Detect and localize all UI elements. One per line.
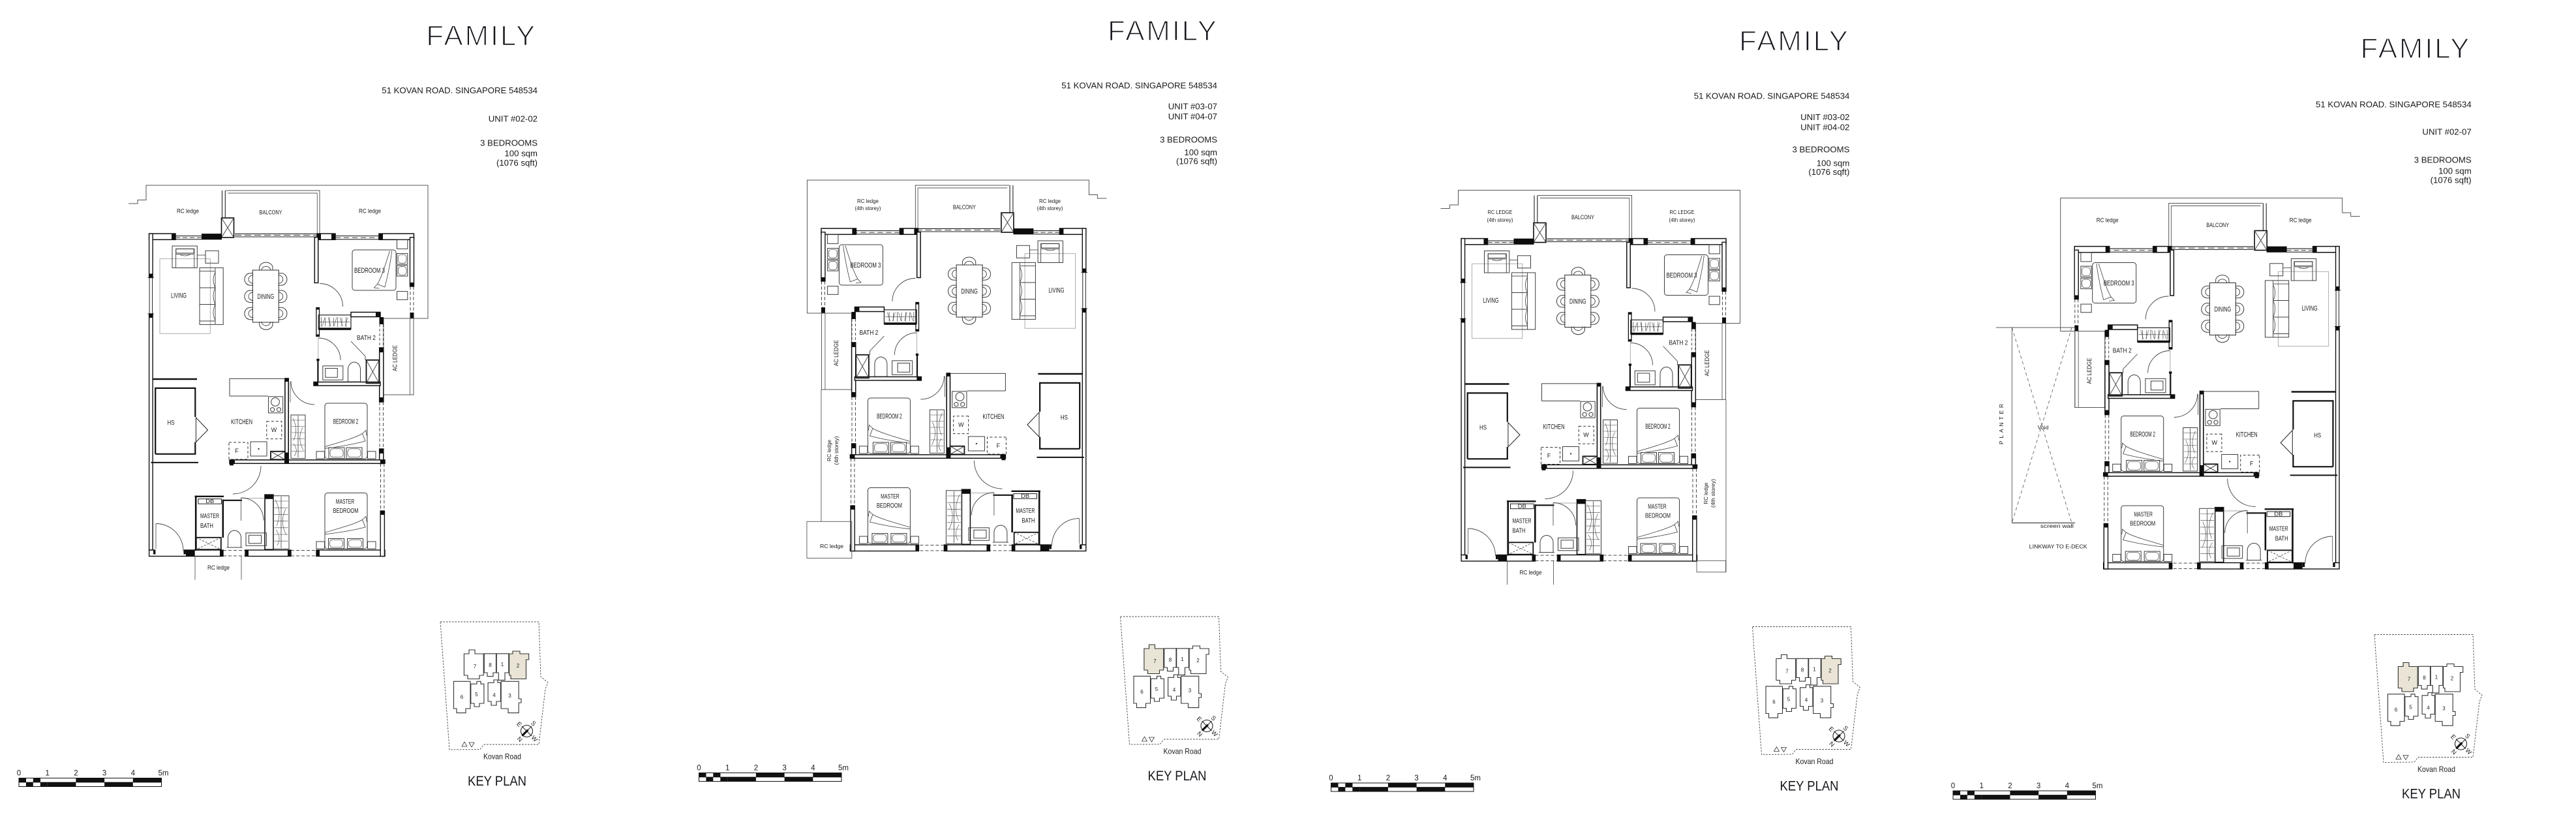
svg-text:1: 1 <box>501 662 504 667</box>
svg-text:PLANTER: PLANTER <box>1998 401 2005 444</box>
svg-text:RC ledge: RC ledge <box>2290 217 2312 224</box>
svg-text:(1076 sqft): (1076 sqft) <box>1808 167 1849 177</box>
svg-text:MASTER: MASTER <box>336 498 355 506</box>
svg-text:Kovan Road: Kovan Road <box>1796 757 1834 766</box>
svg-text:5: 5 <box>1155 686 1159 692</box>
svg-text:Kovan Road: Kovan Road <box>2417 765 2455 774</box>
svg-text:BEDROOM: BEDROOM <box>877 502 902 510</box>
svg-text:3 BEDROOMS: 3 BEDROOMS <box>480 138 538 147</box>
svg-text:2: 2 <box>754 765 758 773</box>
svg-text:4: 4 <box>811 765 815 773</box>
svg-text:BATH: BATH <box>200 523 213 530</box>
svg-text:5m: 5m <box>1470 774 1481 782</box>
svg-text:Kovan Road: Kovan Road <box>483 752 521 761</box>
svg-text:F: F <box>1547 453 1551 459</box>
svg-text:6: 6 <box>1772 699 1776 705</box>
svg-text:3 BEDROOMS: 3 BEDROOMS <box>2414 155 2472 164</box>
svg-text:8: 8 <box>1801 667 1804 673</box>
svg-text:RC ledge: RC ledge <box>1520 570 1542 576</box>
svg-text:KITCHEN: KITCHEN <box>982 413 1004 421</box>
svg-text:HS: HS <box>168 420 175 427</box>
svg-text:(4th storey): (4th storey) <box>1037 206 1063 211</box>
svg-text:UNIT #04-07: UNIT #04-07 <box>1168 112 1217 121</box>
svg-text:AC LEDGE: AC LEDGE <box>2086 358 2093 384</box>
svg-text:5: 5 <box>475 692 478 698</box>
svg-text:(4th storey): (4th storey) <box>1487 217 1513 223</box>
svg-text:7: 7 <box>474 664 477 669</box>
svg-text:DB: DB <box>2274 512 2283 517</box>
svg-text:1: 1 <box>1813 667 1816 673</box>
svg-text:BATH: BATH <box>1513 528 1526 535</box>
svg-text:BEDROOM 2: BEDROOM 2 <box>1645 423 1671 431</box>
svg-text:DB: DB <box>1518 504 1527 510</box>
svg-text:4: 4 <box>1443 774 1447 782</box>
svg-text:RC ledge: RC ledge <box>207 564 230 571</box>
svg-text:HS: HS <box>2314 433 2321 440</box>
svg-text:HS: HS <box>1479 425 1487 432</box>
svg-text:BEDROOM 3: BEDROOM 3 <box>354 267 385 275</box>
svg-text:(4th storey): (4th storey) <box>855 206 881 211</box>
svg-text:BEDROOM: BEDROOM <box>2130 521 2155 528</box>
svg-text:RC ledge: RC ledge <box>1703 482 1709 504</box>
svg-text:UNIT #02-02: UNIT #02-02 <box>489 114 538 124</box>
svg-text:51 KOVAN ROAD. SINGAPORE 54853: 51 KOVAN ROAD. SINGAPORE 548534 <box>2316 99 2472 109</box>
svg-text:DINING: DINING <box>2215 306 2232 314</box>
svg-text:6: 6 <box>461 694 464 700</box>
svg-text:RC ledge: RC ledge <box>177 208 199 215</box>
svg-text:F: F <box>997 442 1001 449</box>
svg-text:100 sqm: 100 sqm <box>504 149 538 159</box>
svg-text:100 sqm: 100 sqm <box>2438 166 2472 176</box>
svg-text:MASTER: MASTER <box>1513 518 1532 525</box>
svg-text:BATH 2: BATH 2 <box>2113 348 2132 355</box>
svg-text:51 KOVAN ROAD. SINGAPORE 54853: 51 KOVAN ROAD. SINGAPORE 548534 <box>1061 81 1217 91</box>
svg-text:3: 3 <box>2037 782 2040 790</box>
svg-text:5m: 5m <box>2093 782 2103 790</box>
svg-text:BEDROOM: BEDROOM <box>1645 513 1671 520</box>
svg-text:UNIT #03-07: UNIT #03-07 <box>1168 102 1217 112</box>
svg-text:HS: HS <box>1061 414 1068 422</box>
svg-text:DINING: DINING <box>1569 298 1586 306</box>
svg-text:W: W <box>2211 440 2217 446</box>
svg-text:MASTER: MASTER <box>1016 508 1035 515</box>
svg-text:4: 4 <box>492 692 496 698</box>
svg-text:1: 1 <box>1357 774 1361 782</box>
svg-text:8: 8 <box>489 662 492 668</box>
svg-text:BALCONY: BALCONY <box>953 204 976 211</box>
svg-text:UNIT #03-02: UNIT #03-02 <box>1800 112 1849 122</box>
svg-text:DB: DB <box>1021 493 1030 499</box>
svg-text:1: 1 <box>2435 675 2438 681</box>
svg-text:7: 7 <box>2408 677 2411 682</box>
svg-text:3: 3 <box>2442 706 2446 712</box>
svg-text:LIVING: LIVING <box>2302 305 2318 313</box>
svg-text:(4th storey): (4th storey) <box>834 436 840 465</box>
svg-text:2: 2 <box>1386 774 1390 782</box>
svg-text:4: 4 <box>2427 705 2430 711</box>
svg-text:3: 3 <box>1189 688 1192 694</box>
svg-text:0: 0 <box>17 770 21 778</box>
svg-text:0: 0 <box>697 765 701 773</box>
svg-text:2: 2 <box>1196 658 1200 664</box>
svg-text:LIVING: LIVING <box>1048 287 1064 295</box>
svg-text:4: 4 <box>2065 782 2070 790</box>
svg-text:BEDROOM 2: BEDROOM 2 <box>333 418 359 426</box>
svg-text:3: 3 <box>508 693 511 699</box>
svg-text:8: 8 <box>2423 675 2426 681</box>
svg-text:3: 3 <box>1821 698 1824 704</box>
svg-text:3: 3 <box>782 765 786 773</box>
svg-text:7: 7 <box>1153 658 1157 664</box>
svg-text:BATH 2: BATH 2 <box>1669 340 1688 347</box>
svg-text:LIVING: LIVING <box>1483 297 1499 305</box>
svg-text:MASTER: MASTER <box>2269 526 2288 533</box>
svg-text:BATH 2: BATH 2 <box>859 330 878 337</box>
svg-text:4: 4 <box>1173 687 1176 693</box>
svg-text:0: 0 <box>1329 774 1333 782</box>
svg-text:7: 7 <box>1785 669 1789 675</box>
svg-text:Void: Void <box>2038 424 2049 431</box>
svg-text:BEDROOM 3: BEDROOM 3 <box>2104 280 2134 288</box>
svg-text:DINING: DINING <box>258 293 275 301</box>
svg-text:BALCONY: BALCONY <box>2206 222 2229 229</box>
svg-text:6: 6 <box>2395 707 2398 713</box>
svg-text:MASTER: MASTER <box>881 493 900 500</box>
svg-text:RC ledge: RC ledge <box>359 208 381 215</box>
svg-text:Kovan Road: Kovan Road <box>1164 747 1202 756</box>
svg-text:BEDROOM 2: BEDROOM 2 <box>877 413 902 421</box>
svg-text:(4th storey): (4th storey) <box>1710 479 1716 508</box>
svg-text:3: 3 <box>102 770 106 778</box>
svg-text:BATH: BATH <box>2275 536 2288 543</box>
svg-text:1: 1 <box>1979 782 1983 790</box>
svg-text:W: W <box>1583 432 1589 438</box>
svg-text:AC LEDGE: AC LEDGE <box>392 345 399 371</box>
svg-text:KEY PLAN: KEY PLAN <box>2402 786 2461 802</box>
svg-text:2: 2 <box>517 663 520 669</box>
svg-text:BATH 2: BATH 2 <box>357 335 376 342</box>
svg-text:3 BEDROOMS: 3 BEDROOMS <box>1160 135 1217 145</box>
svg-text:BEDROOM 3: BEDROOM 3 <box>1667 272 1697 280</box>
svg-text:AC LEDGE: AC LEDGE <box>1704 350 1710 376</box>
svg-text:F: F <box>235 448 239 454</box>
svg-text:W: W <box>271 427 277 433</box>
svg-text:(1076 sqft): (1076 sqft) <box>1176 157 1217 166</box>
svg-text:LIVING: LIVING <box>171 292 187 300</box>
svg-text:6: 6 <box>1140 689 1144 695</box>
svg-text:KITCHEN: KITCHEN <box>231 418 252 426</box>
svg-text:BATH: BATH <box>1022 517 1035 525</box>
svg-text:DINING: DINING <box>961 288 978 296</box>
svg-text:MASTER: MASTER <box>200 513 219 520</box>
svg-text:4: 4 <box>1805 698 1808 703</box>
svg-text:RC ledge: RC ledge <box>826 439 832 461</box>
svg-text:(1076 sqft): (1076 sqft) <box>2431 175 2472 185</box>
svg-text:1: 1 <box>725 765 729 773</box>
svg-text:1: 1 <box>1181 656 1184 662</box>
svg-text:UNIT #04-02: UNIT #04-02 <box>1800 122 1849 132</box>
svg-text:BEDROOM: BEDROOM <box>333 508 359 515</box>
svg-text:KEY PLAN: KEY PLAN <box>1148 768 1207 784</box>
svg-text:0: 0 <box>1951 782 1955 790</box>
svg-text:LINKWAY TO E-DECK: LINKWAY TO E-DECK <box>2029 543 2087 549</box>
svg-text:MASTER: MASTER <box>2134 512 2153 519</box>
svg-text:2: 2 <box>1828 668 1832 674</box>
svg-text:2: 2 <box>74 770 78 778</box>
svg-text:BALCONY: BALCONY <box>1571 214 1594 221</box>
svg-text:5: 5 <box>2409 705 2412 711</box>
svg-text:DB: DB <box>205 498 215 504</box>
svg-text:(1076 sqft): (1076 sqft) <box>496 158 538 168</box>
svg-text:RC ledge: RC ledge <box>857 198 879 204</box>
svg-text:BEDROOM 2: BEDROOM 2 <box>2130 431 2155 438</box>
svg-text:RC ledge: RC ledge <box>1039 198 1061 204</box>
svg-text:UNIT #02-07: UNIT #02-07 <box>2422 127 2471 137</box>
svg-text:KEY PLAN: KEY PLAN <box>468 773 526 789</box>
svg-text:51 KOVAN ROAD. SINGAPORE 54853: 51 KOVAN ROAD. SINGAPORE 548534 <box>382 85 538 95</box>
svg-text:KEY PLAN: KEY PLAN <box>1780 778 1839 794</box>
svg-text:RC LEDGE: RC LEDGE <box>1670 209 1695 215</box>
svg-text:KITCHEN: KITCHEN <box>1543 423 1565 431</box>
svg-text:8: 8 <box>1169 657 1172 663</box>
svg-text:AC LEDGE: AC LEDGE <box>833 340 840 366</box>
svg-text:BALCONY: BALCONY <box>260 209 282 217</box>
svg-text:(4th storey): (4th storey) <box>1669 217 1695 223</box>
svg-text:5: 5 <box>1787 697 1791 703</box>
svg-text:KITCHEN: KITCHEN <box>2236 431 2258 439</box>
svg-text:W: W <box>958 422 964 428</box>
svg-text:2: 2 <box>2008 782 2012 790</box>
svg-text:screen wall: screen wall <box>2040 523 2074 529</box>
svg-text:RC LEDGE: RC LEDGE <box>1488 209 1513 215</box>
svg-text:5m: 5m <box>838 765 849 773</box>
svg-text:MASTER: MASTER <box>1648 504 1667 511</box>
svg-text:4: 4 <box>131 770 136 778</box>
svg-text:1: 1 <box>45 770 49 778</box>
svg-text:RC ledge: RC ledge <box>820 543 843 549</box>
svg-text:5m: 5m <box>159 770 169 778</box>
svg-text:3: 3 <box>1414 774 1418 782</box>
svg-text:F: F <box>2250 461 2254 467</box>
svg-text:2: 2 <box>2451 676 2454 682</box>
svg-text:RC ledge: RC ledge <box>2097 217 2119 224</box>
svg-text:3 BEDROOMS: 3 BEDROOMS <box>1792 145 1849 155</box>
svg-text:BEDROOM 3: BEDROOM 3 <box>850 262 881 269</box>
svg-text:51 KOVAN ROAD. SINGAPORE 54853: 51 KOVAN ROAD. SINGAPORE 548534 <box>1694 91 1850 101</box>
